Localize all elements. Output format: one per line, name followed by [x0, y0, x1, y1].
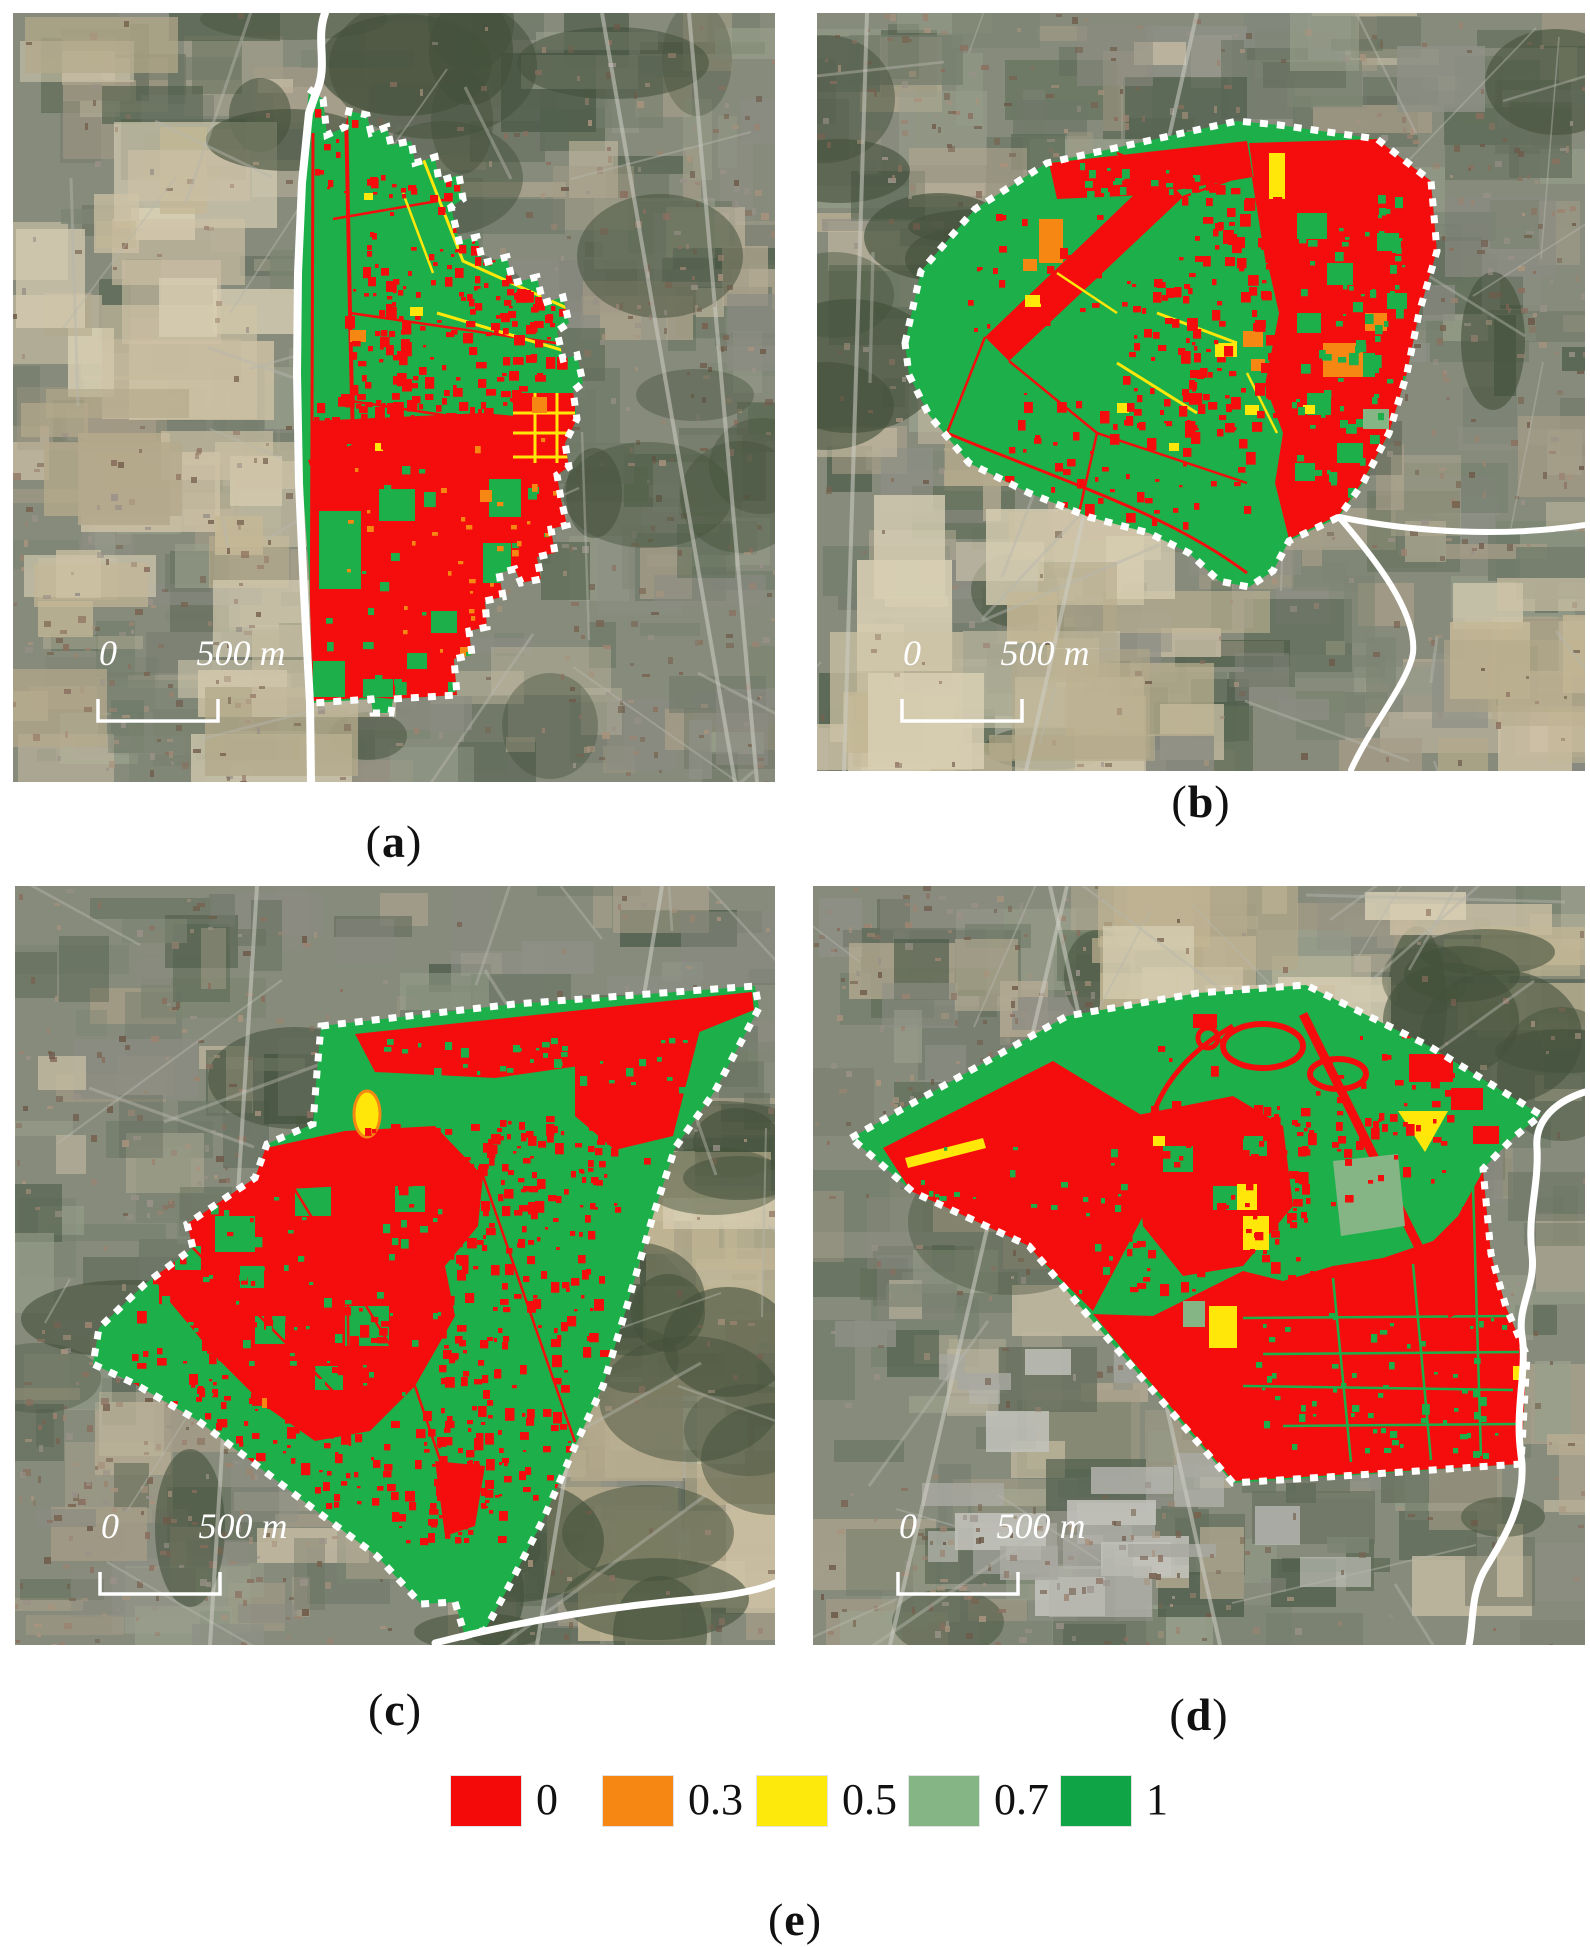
scalebar-zero-a: 0	[99, 633, 117, 673]
map-panel-c: 0 500 m	[15, 886, 775, 1645]
caption-paren: (	[1171, 776, 1187, 827]
scalebar-distance-c: 500 m	[199, 1506, 288, 1546]
map-panel-d: 0 500 m	[813, 886, 1585, 1645]
scalebar-distance-a: 500 m	[197, 633, 286, 673]
caption-paren: )	[406, 1684, 422, 1735]
legend-swatch-03	[602, 1775, 674, 1827]
panel-caption-d: (d)	[813, 1688, 1585, 1741]
caption-paren: )	[1212, 1689, 1228, 1740]
figure-caption-e: (e)	[0, 1893, 1590, 1946]
scalebar-zero-c: 0	[101, 1506, 119, 1546]
scalebar-zero-b: 0	[903, 633, 921, 673]
legend-label-05: 0.5	[842, 1775, 897, 1825]
legend-label-0: 0	[536, 1775, 558, 1825]
panel-caption-a: (a)	[13, 815, 775, 868]
legend-swatch-0	[450, 1775, 522, 1827]
caption-paren: (	[366, 816, 382, 867]
figure-page: 0 500 m	[0, 0, 1590, 1947]
caption-paren: )	[406, 816, 422, 867]
caption-paren: )	[806, 1894, 822, 1945]
caption-paren: (	[768, 1894, 784, 1945]
caption-letter-d: d	[1186, 1689, 1213, 1740]
scalebar-zero-d: 0	[899, 1506, 917, 1546]
caption-letter-e: e	[784, 1894, 805, 1945]
scalebar-distance-b: 500 m	[1001, 633, 1090, 673]
panel-caption-c: (c)	[15, 1683, 775, 1736]
caption-letter-b: b	[1188, 776, 1215, 827]
legend-swatch-05	[756, 1775, 828, 1827]
caption-paren: (	[368, 1684, 384, 1735]
caption-letter-a: a	[382, 816, 406, 867]
legend-label-07: 0.7	[994, 1775, 1049, 1825]
caption-paren: (	[1169, 1689, 1185, 1740]
legend-swatch-07	[908, 1775, 980, 1827]
scalebar-distance-d: 500 m	[997, 1506, 1086, 1546]
legend-label-03: 0.3	[688, 1775, 743, 1825]
caption-letter-c: c	[384, 1684, 405, 1735]
panel-caption-b: (b)	[817, 775, 1585, 828]
map-panel-b: 0 500 m	[817, 13, 1585, 771]
caption-paren: )	[1214, 776, 1230, 827]
legend-swatch-1	[1060, 1775, 1132, 1827]
map-panel-a: 0 500 m	[13, 13, 775, 782]
legend: 0 0.3 0.5 0.7 1	[0, 1775, 1590, 1835]
legend-label-1: 1	[1146, 1775, 1168, 1825]
